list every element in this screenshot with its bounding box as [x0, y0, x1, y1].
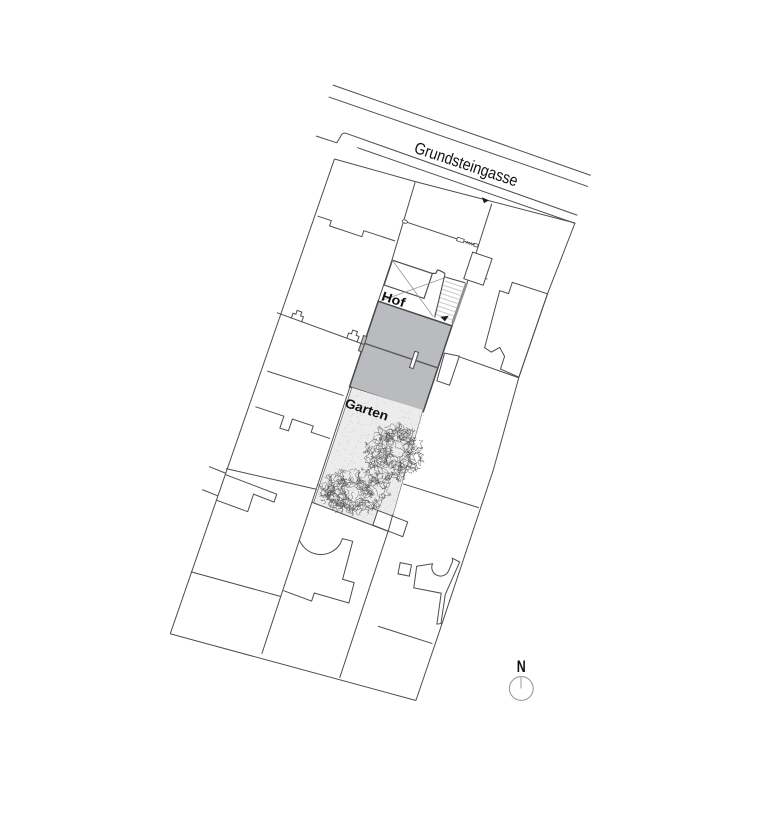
svg-text:N: N [517, 657, 526, 676]
